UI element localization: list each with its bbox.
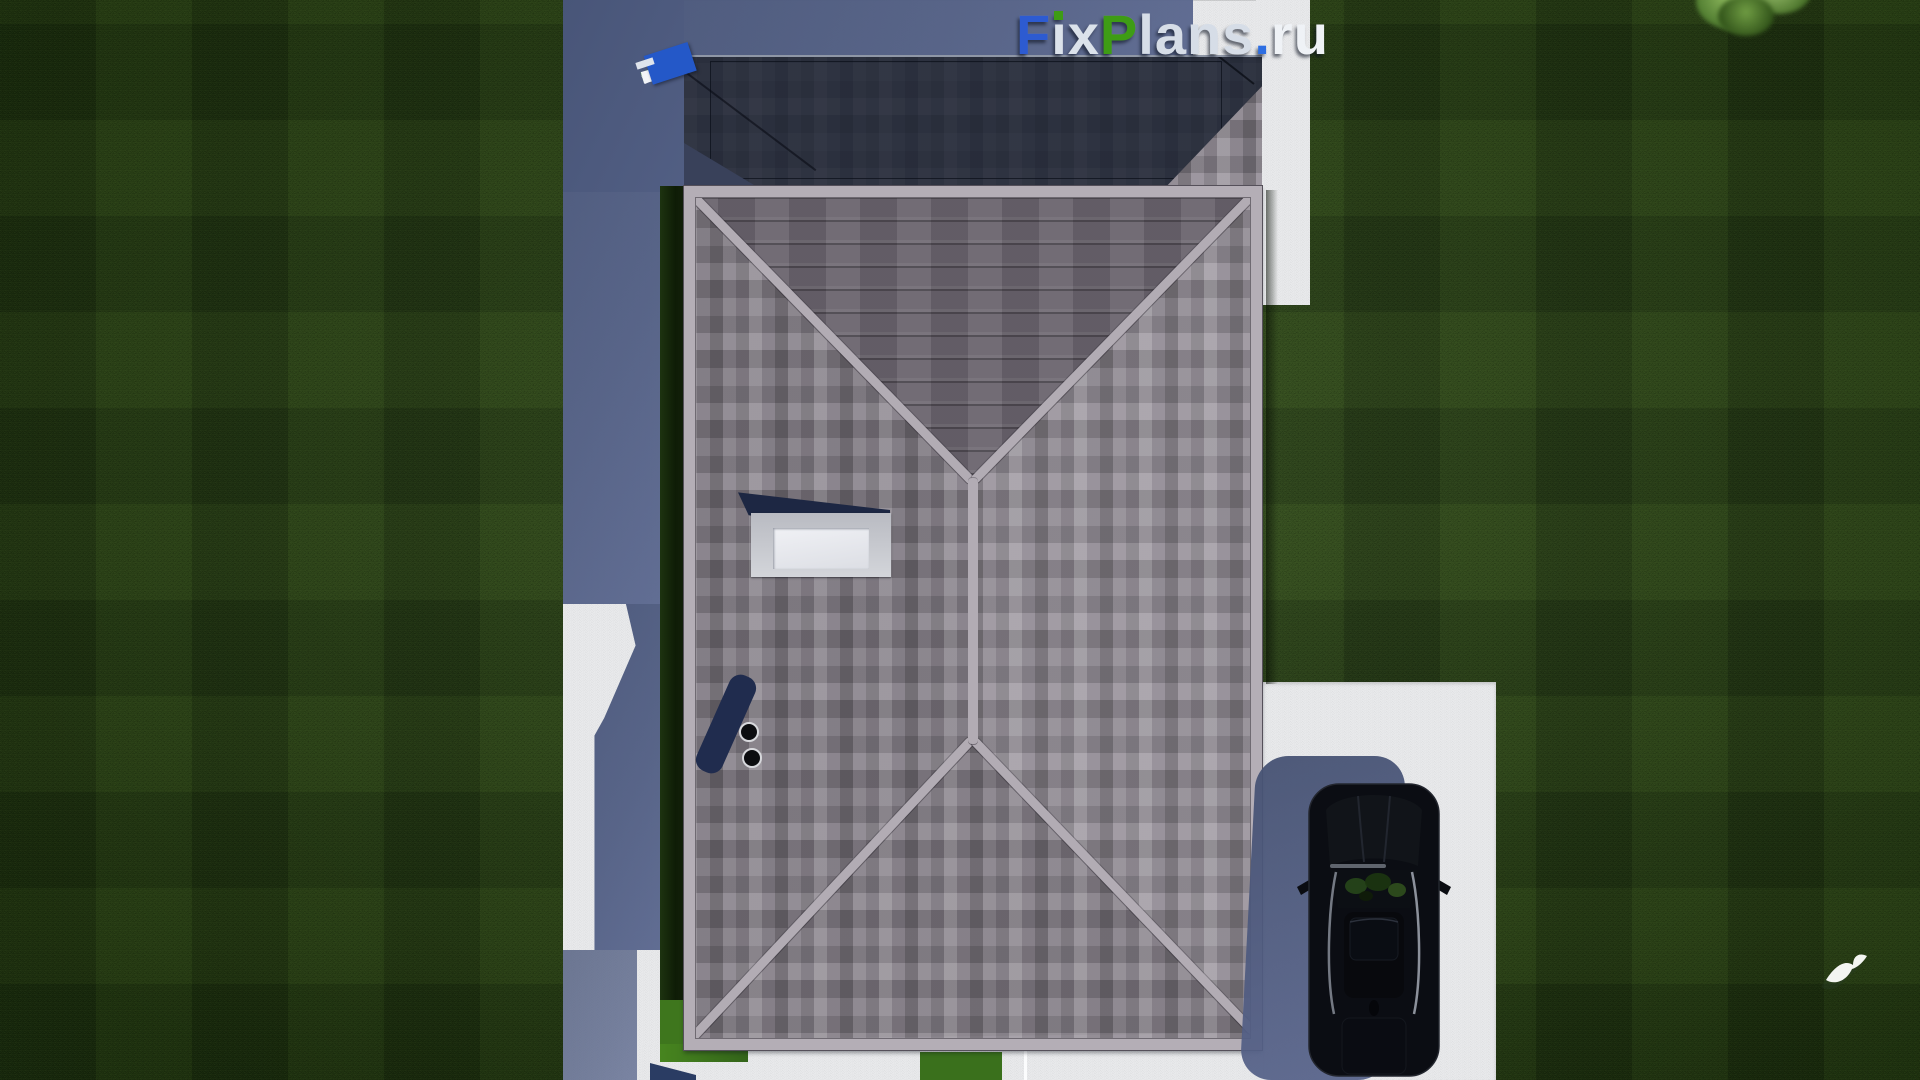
logo-letter: lans [1138, 2, 1254, 67]
logo-letter: F [1016, 2, 1051, 67]
skylight-pane [773, 528, 868, 569]
logo-watermark: FixPlans.ru [1016, 2, 1329, 64]
roof-vent-pipe-1 [739, 722, 759, 742]
car-sunroof [1350, 918, 1398, 960]
parked-car [1294, 780, 1454, 1080]
logo-letter: ru [1271, 2, 1329, 67]
paving-joint-line [1024, 1046, 1027, 1080]
car-hood [1326, 795, 1422, 866]
eave-grass-shadow [1266, 190, 1278, 684]
tree-canopy [1688, 0, 1838, 58]
logo-letter: . [1254, 2, 1271, 67]
roof-vent-pipe-2 [742, 748, 762, 768]
tree-foliage [1718, 0, 1774, 36]
grass-patch-bottom [920, 1052, 1002, 1080]
hedge-strip [660, 186, 686, 1060]
car-antenna-fin [1369, 1000, 1379, 1016]
car-cowl-chrome [1330, 864, 1386, 868]
hip-roof [684, 186, 1262, 1050]
roof-eave-frame [684, 186, 1262, 1050]
logo-letter: P [1100, 2, 1138, 67]
roof-skylight [751, 513, 891, 577]
aerial-render: FixPlans.ru [0, 0, 1920, 1080]
car-trunk [1342, 1018, 1406, 1074]
logo-i-dot [1054, 11, 1063, 20]
flying-bird [1822, 950, 1874, 996]
